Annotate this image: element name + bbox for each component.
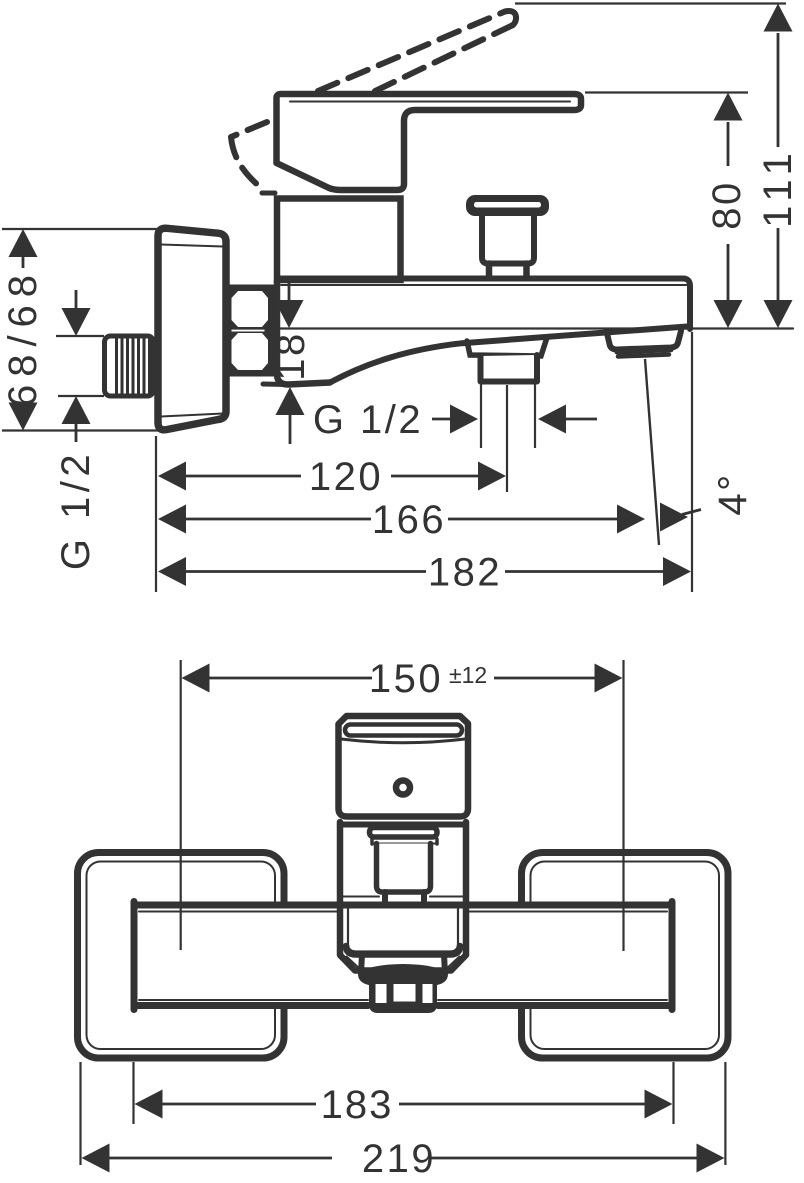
svg-text:G 1/2: G 1/2 [313,398,423,442]
svg-text:150: 150 [369,657,443,701]
svg-text:68/68: 68/68 [1,267,45,407]
svg-text:G 1/2: G 1/2 [54,450,98,570]
svg-text:166: 166 [372,498,446,542]
svg-text:219: 219 [362,1137,436,1181]
svg-text:120: 120 [309,455,383,499]
svg-text:111: 111 [756,146,800,228]
svg-text:182: 182 [428,551,502,595]
svg-text:18: 18 [269,331,313,381]
svg-text:±12: ±12 [449,662,487,688]
svg-text:183: 183 [321,1083,394,1127]
svg-text:80: 80 [705,180,749,230]
svg-text:4°: 4° [711,472,755,515]
